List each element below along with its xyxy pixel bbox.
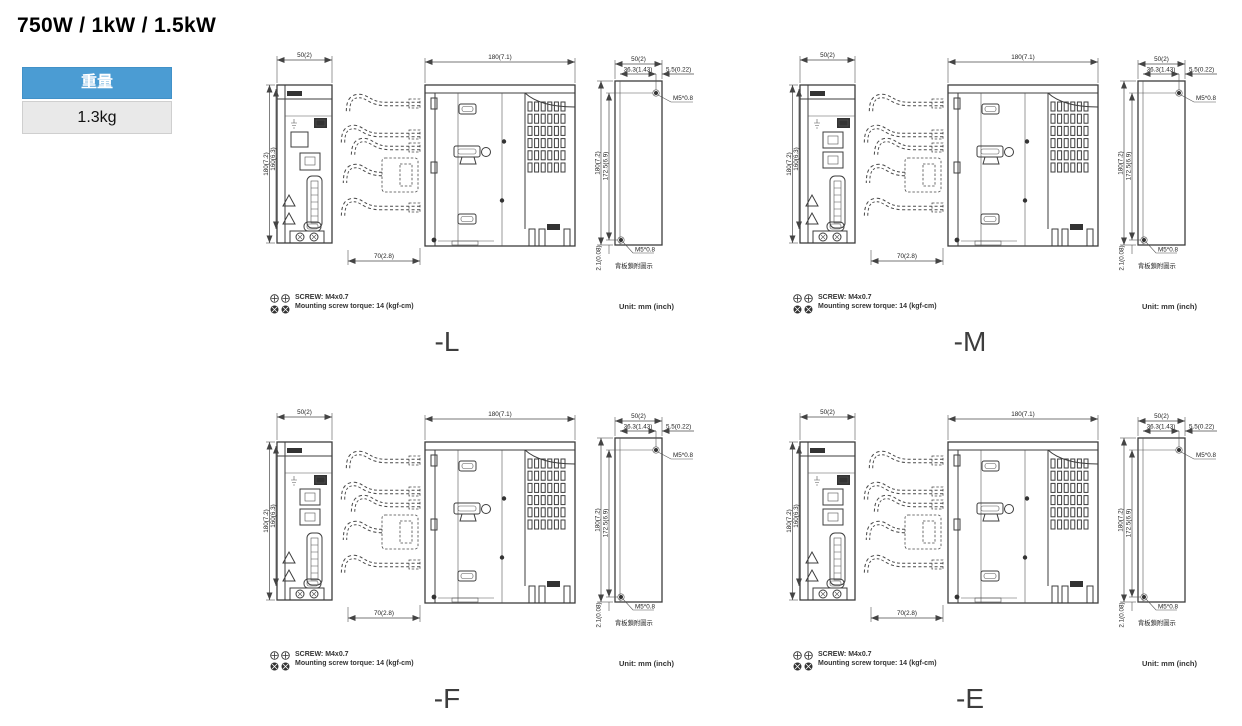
side-view: 180(7.1) [425, 411, 575, 603]
dim-hole-pitch: 172.5(6.9) [603, 152, 610, 181]
screw-spec-top: M5*0.8 [1196, 452, 1216, 459]
dim-hole-pitch: 172.5(6.9) [1126, 152, 1133, 181]
torque-note: Mounting screw torque: 14 (kgf-cm) [818, 659, 937, 668]
machine-screw-icon [270, 651, 279, 660]
dimension-drawing: 50(2) 180(7.2) 160(6.3) [262, 393, 742, 649]
dim-hole-edge-offset: 5.5(0.22) [666, 424, 691, 431]
mounting-screw-icon [270, 305, 279, 314]
dim-front-width: 50(2) [820, 409, 835, 416]
back-view: 50(2) 36.3(1.43) 5.5(0.22) M5*0.8 M5*0.8… [595, 56, 695, 271]
mounting-screw-icon [270, 662, 279, 671]
dim-front-height-inner: 160(6.3) [793, 504, 800, 527]
torque-note: Mounting screw torque: 14 (kgf-cm) [295, 302, 414, 311]
manual-page: 750W / 1kW / 1.5kW 重量 1.3kg [0, 0, 1242, 726]
dim-bottom-offset: 2.1(0.08) [1119, 602, 1126, 627]
dim-front-width: 50(2) [820, 52, 835, 59]
dim-hole-edge-offset: 5.5(0.22) [666, 67, 691, 74]
dim-side-width: 180(7.1) [1011, 411, 1034, 418]
dim-back-height-outer: 180(7.2) [1118, 151, 1125, 174]
dim-back-height-outer: 180(7.2) [1118, 508, 1125, 531]
variant-label: -E [785, 683, 1155, 715]
dim-front-height-outer: 180(7.2) [263, 152, 270, 175]
side-view: 180(7.1) [948, 54, 1098, 246]
screw-notes: SCREW: M4x0.7 Mounting screw torque: 14 … [270, 293, 414, 314]
front-view: 50(2) 180(7.2) 160(6.3) [786, 52, 855, 243]
back-view: 50(2) 36.3(1.43) 5.5(0.22) M5*0.8 M5*0.8… [595, 413, 695, 628]
dim-front-width: 50(2) [297, 52, 312, 59]
screw-note: SCREW: M4x0.7 [818, 650, 937, 659]
dim-hole-span: 36.3(1.43) [624, 67, 653, 74]
dim-bottom-offset: 2.1(0.08) [1119, 245, 1126, 270]
dim-front-width: 50(2) [297, 409, 312, 416]
dim-front-height-outer: 180(7.2) [786, 152, 793, 175]
drawing-panel: 50(2) 180(7.2) 160(6.3) [262, 393, 742, 723]
drawing-panels: 50(2) 180(7.2) 160(6.3) [0, 0, 1242, 726]
dim-front-height-outer: 180(7.2) [263, 509, 270, 532]
front-view: 50(2) 180(7.2) 160(6.3) [786, 409, 855, 600]
dim-hole-edge-offset: 5.5(0.22) [1189, 67, 1214, 74]
dimension-drawing: 50(2) 180(7.2) 160(6.3) [785, 393, 1242, 649]
dim-cable-depth: 70(2.8) [374, 610, 394, 617]
back-plate-note: 背板鎖附圖示 [1138, 261, 1176, 270]
torque-note: Mounting screw torque: 14 (kgf-cm) [818, 302, 937, 311]
cable-bundle: 70(2.8) [866, 96, 943, 265]
screw-notes: SCREW: M4x0.7 Mounting screw torque: 14 … [270, 650, 414, 671]
machine-screw-icon [281, 651, 290, 660]
mounting-screw-icon [281, 662, 290, 671]
dim-side-width: 180(7.1) [488, 411, 511, 418]
cable-bundle: 70(2.8) [343, 96, 420, 265]
dim-bottom-offset: 2.1(0.08) [596, 245, 603, 270]
dim-hole-pitch: 172.5(6.9) [1126, 509, 1133, 538]
mounting-screw-icon [281, 305, 290, 314]
dim-front-height-inner: 160(6.3) [793, 147, 800, 170]
screw-spec-bottom: M5*0.8 [1158, 604, 1178, 611]
dim-back-width: 50(2) [631, 56, 646, 63]
dim-side-width: 180(7.1) [1011, 54, 1034, 61]
screw-note: SCREW: M4x0.7 [818, 293, 937, 302]
dim-cable-depth: 70(2.8) [897, 253, 917, 260]
dim-front-height-outer: 180(7.2) [786, 509, 793, 532]
screw-icons [270, 650, 290, 671]
machine-screw-icon [804, 651, 813, 660]
back-plate-note: 背板鎖附圖示 [1138, 618, 1176, 627]
screw-spec-top: M5*0.8 [1196, 95, 1216, 102]
side-view: 180(7.1) [425, 54, 575, 246]
screw-spec-bottom: M5*0.8 [1158, 247, 1178, 254]
drawing-panel: 50(2) 180(7.2) 160(6.3) [785, 393, 1242, 723]
back-view: 50(2) 36.3(1.43) 5.5(0.22) M5*0.8 M5*0.8… [1118, 413, 1218, 628]
dim-back-height-outer: 180(7.2) [595, 151, 602, 174]
dim-hole-span: 36.3(1.43) [1147, 424, 1176, 431]
torque-note: Mounting screw torque: 14 (kgf-cm) [295, 659, 414, 668]
screw-spec-bottom: M5*0.8 [635, 247, 655, 254]
back-plate-note: 背板鎖附圖示 [615, 618, 653, 627]
screw-icons [793, 293, 813, 314]
unit-label: Unit: mm (inch) [1142, 659, 1197, 668]
dim-hole-edge-offset: 5.5(0.22) [1189, 424, 1214, 431]
drawing-panel: 50(2) 180(7.2) 160(6.3) [785, 36, 1242, 366]
drawing-panel: 50(2) 180(7.2) 160(6.3) [262, 36, 742, 366]
dim-side-width: 180(7.1) [488, 54, 511, 61]
dim-hole-span: 36.3(1.43) [624, 424, 653, 431]
variant-label: -M [785, 326, 1155, 358]
back-plate-note: 背板鎖附圖示 [615, 261, 653, 270]
machine-screw-icon [793, 651, 802, 660]
dim-back-width: 50(2) [1154, 56, 1169, 63]
dim-hole-span: 36.3(1.43) [1147, 67, 1176, 74]
machine-screw-icon [804, 294, 813, 303]
screw-notes: SCREW: M4x0.7 Mounting screw torque: 14 … [793, 293, 937, 314]
dim-front-height-inner: 160(6.3) [270, 147, 277, 170]
mounting-screw-icon [793, 305, 802, 314]
screw-icons [793, 650, 813, 671]
machine-screw-icon [793, 294, 802, 303]
screw-spec-top: M5*0.8 [673, 95, 693, 102]
mounting-screw-icon [804, 305, 813, 314]
front-view: 50(2) 180(7.2) 160(6.3) [263, 409, 332, 600]
mounting-screw-icon [804, 662, 813, 671]
cable-bundle: 70(2.8) [343, 453, 420, 622]
variant-label: -F [262, 683, 632, 715]
dim-hole-pitch: 172.5(6.9) [603, 509, 610, 538]
screw-note: SCREW: M4x0.7 [295, 293, 414, 302]
dimension-drawing: 50(2) 180(7.2) 160(6.3) [262, 36, 742, 292]
mounting-screw-icon [793, 662, 802, 671]
back-view: 50(2) 36.3(1.43) 5.5(0.22) M5*0.8 M5*0.8… [1118, 56, 1218, 271]
screw-note: SCREW: M4x0.7 [295, 650, 414, 659]
screw-notes: SCREW: M4x0.7 Mounting screw torque: 14 … [793, 650, 937, 671]
dim-back-height-outer: 180(7.2) [595, 508, 602, 531]
unit-label: Unit: mm (inch) [619, 302, 674, 311]
machine-screw-icon [270, 294, 279, 303]
dim-cable-depth: 70(2.8) [374, 253, 394, 260]
dim-back-width: 50(2) [631, 413, 646, 420]
side-view: 180(7.1) [948, 411, 1098, 603]
unit-label: Unit: mm (inch) [1142, 302, 1197, 311]
variant-label: -L [262, 326, 632, 358]
dim-bottom-offset: 2.1(0.08) [596, 602, 603, 627]
screw-icons [270, 293, 290, 314]
dim-front-height-inner: 160(6.3) [270, 504, 277, 527]
screw-spec-bottom: M5*0.8 [635, 604, 655, 611]
cable-bundle: 70(2.8) [866, 453, 943, 622]
screw-spec-top: M5*0.8 [673, 452, 693, 459]
dim-cable-depth: 70(2.8) [897, 610, 917, 617]
front-view: 50(2) 180(7.2) 160(6.3) [263, 52, 332, 243]
unit-label: Unit: mm (inch) [619, 659, 674, 668]
machine-screw-icon [281, 294, 290, 303]
dim-back-width: 50(2) [1154, 413, 1169, 420]
dimension-drawing: 50(2) 180(7.2) 160(6.3) [785, 36, 1242, 292]
